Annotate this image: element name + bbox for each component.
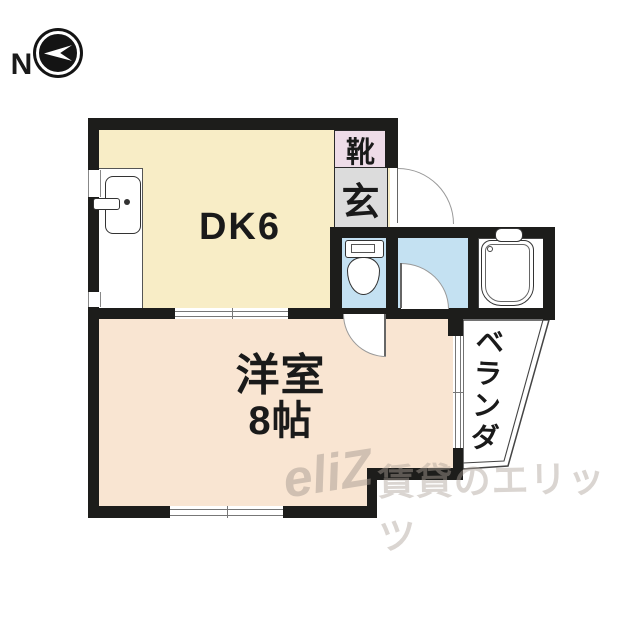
wall-washroom-bath	[468, 238, 478, 308]
window-left-lower	[88, 292, 101, 307]
wall-bath-right	[543, 227, 555, 320]
floor-plan-page: { "compass": { "letter": "N" }, "plan": …	[0, 0, 640, 640]
entrance-label: 玄	[341, 171, 380, 226]
room-bedroom-label-line1: 洋室	[178, 352, 383, 399]
wall-toilet-left	[330, 227, 342, 319]
window-bedroom-south	[170, 506, 283, 518]
shoes-cabinet: 靴	[334, 130, 388, 169]
bathtub-inner-line	[485, 244, 530, 302]
wall-toilet-right	[386, 238, 398, 308]
north-arrow-ring	[36, 31, 80, 75]
shoes-label: 靴	[346, 129, 376, 171]
kitchen-sink-drain	[124, 199, 130, 205]
bathtub-icon	[481, 240, 534, 306]
toilet-door-leaf	[384, 314, 386, 356]
entrance-genkan: 玄	[334, 167, 388, 229]
bathtub-faucet-icon	[495, 228, 523, 242]
wall-entrance-right	[385, 118, 398, 168]
window-left-upper	[88, 170, 101, 197]
wall-top	[88, 118, 397, 130]
north-arrow-pointer	[44, 42, 72, 64]
window-mullion	[227, 506, 228, 518]
toilet-lid	[351, 244, 375, 253]
veranda-label: ベランダ	[459, 325, 508, 467]
window-mullion	[232, 308, 233, 319]
window-dk-bedroom	[175, 308, 288, 319]
north-arrow-icon	[33, 28, 83, 78]
window-mullion	[453, 392, 463, 393]
bathtub-drain	[487, 246, 493, 252]
entrance-door-leaf	[397, 168, 399, 223]
wall-middle	[88, 308, 555, 319]
room-bedroom-label: 洋室 8帖	[178, 352, 383, 443]
room-bedroom-label-line2: 8帖	[178, 399, 383, 443]
wall-veranda-stub	[448, 319, 463, 336]
wall-step-left	[367, 480, 377, 518]
wall-step-horizontal	[367, 468, 463, 480]
compass-north-label: N	[8, 48, 36, 82]
washroom-door-leaf	[400, 263, 402, 308]
room-dk-label: DK6	[150, 206, 330, 249]
kitchen-sink-faucet	[93, 198, 120, 210]
floor-plan-canvas: N 靴 玄	[0, 0, 640, 640]
